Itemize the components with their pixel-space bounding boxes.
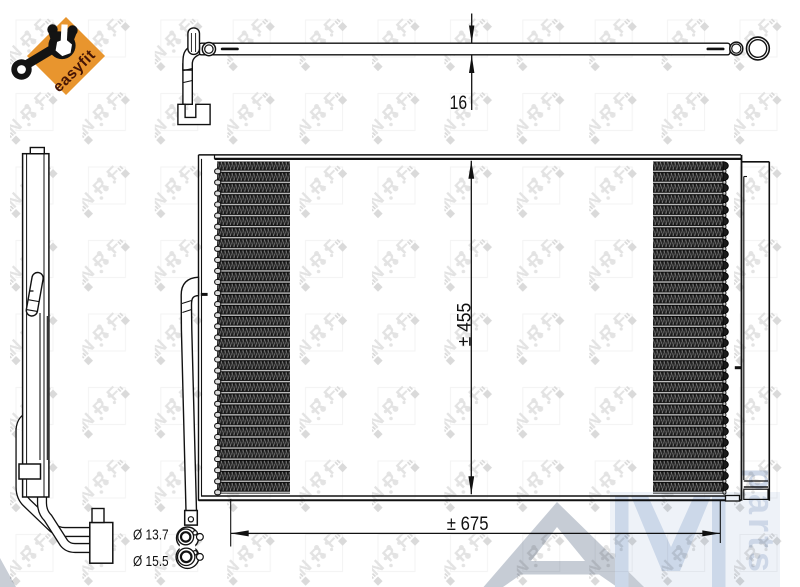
svg-text:± 455: ± 455: [453, 303, 475, 347]
svg-text:parts: parts: [741, 468, 782, 576]
svg-text:16: 16: [450, 92, 468, 114]
svg-text:± 675: ± 675: [447, 513, 489, 535]
svg-text:Ø 15.5: Ø 15.5: [133, 554, 169, 570]
svg-text:Ø 13.7: Ø 13.7: [133, 528, 169, 544]
